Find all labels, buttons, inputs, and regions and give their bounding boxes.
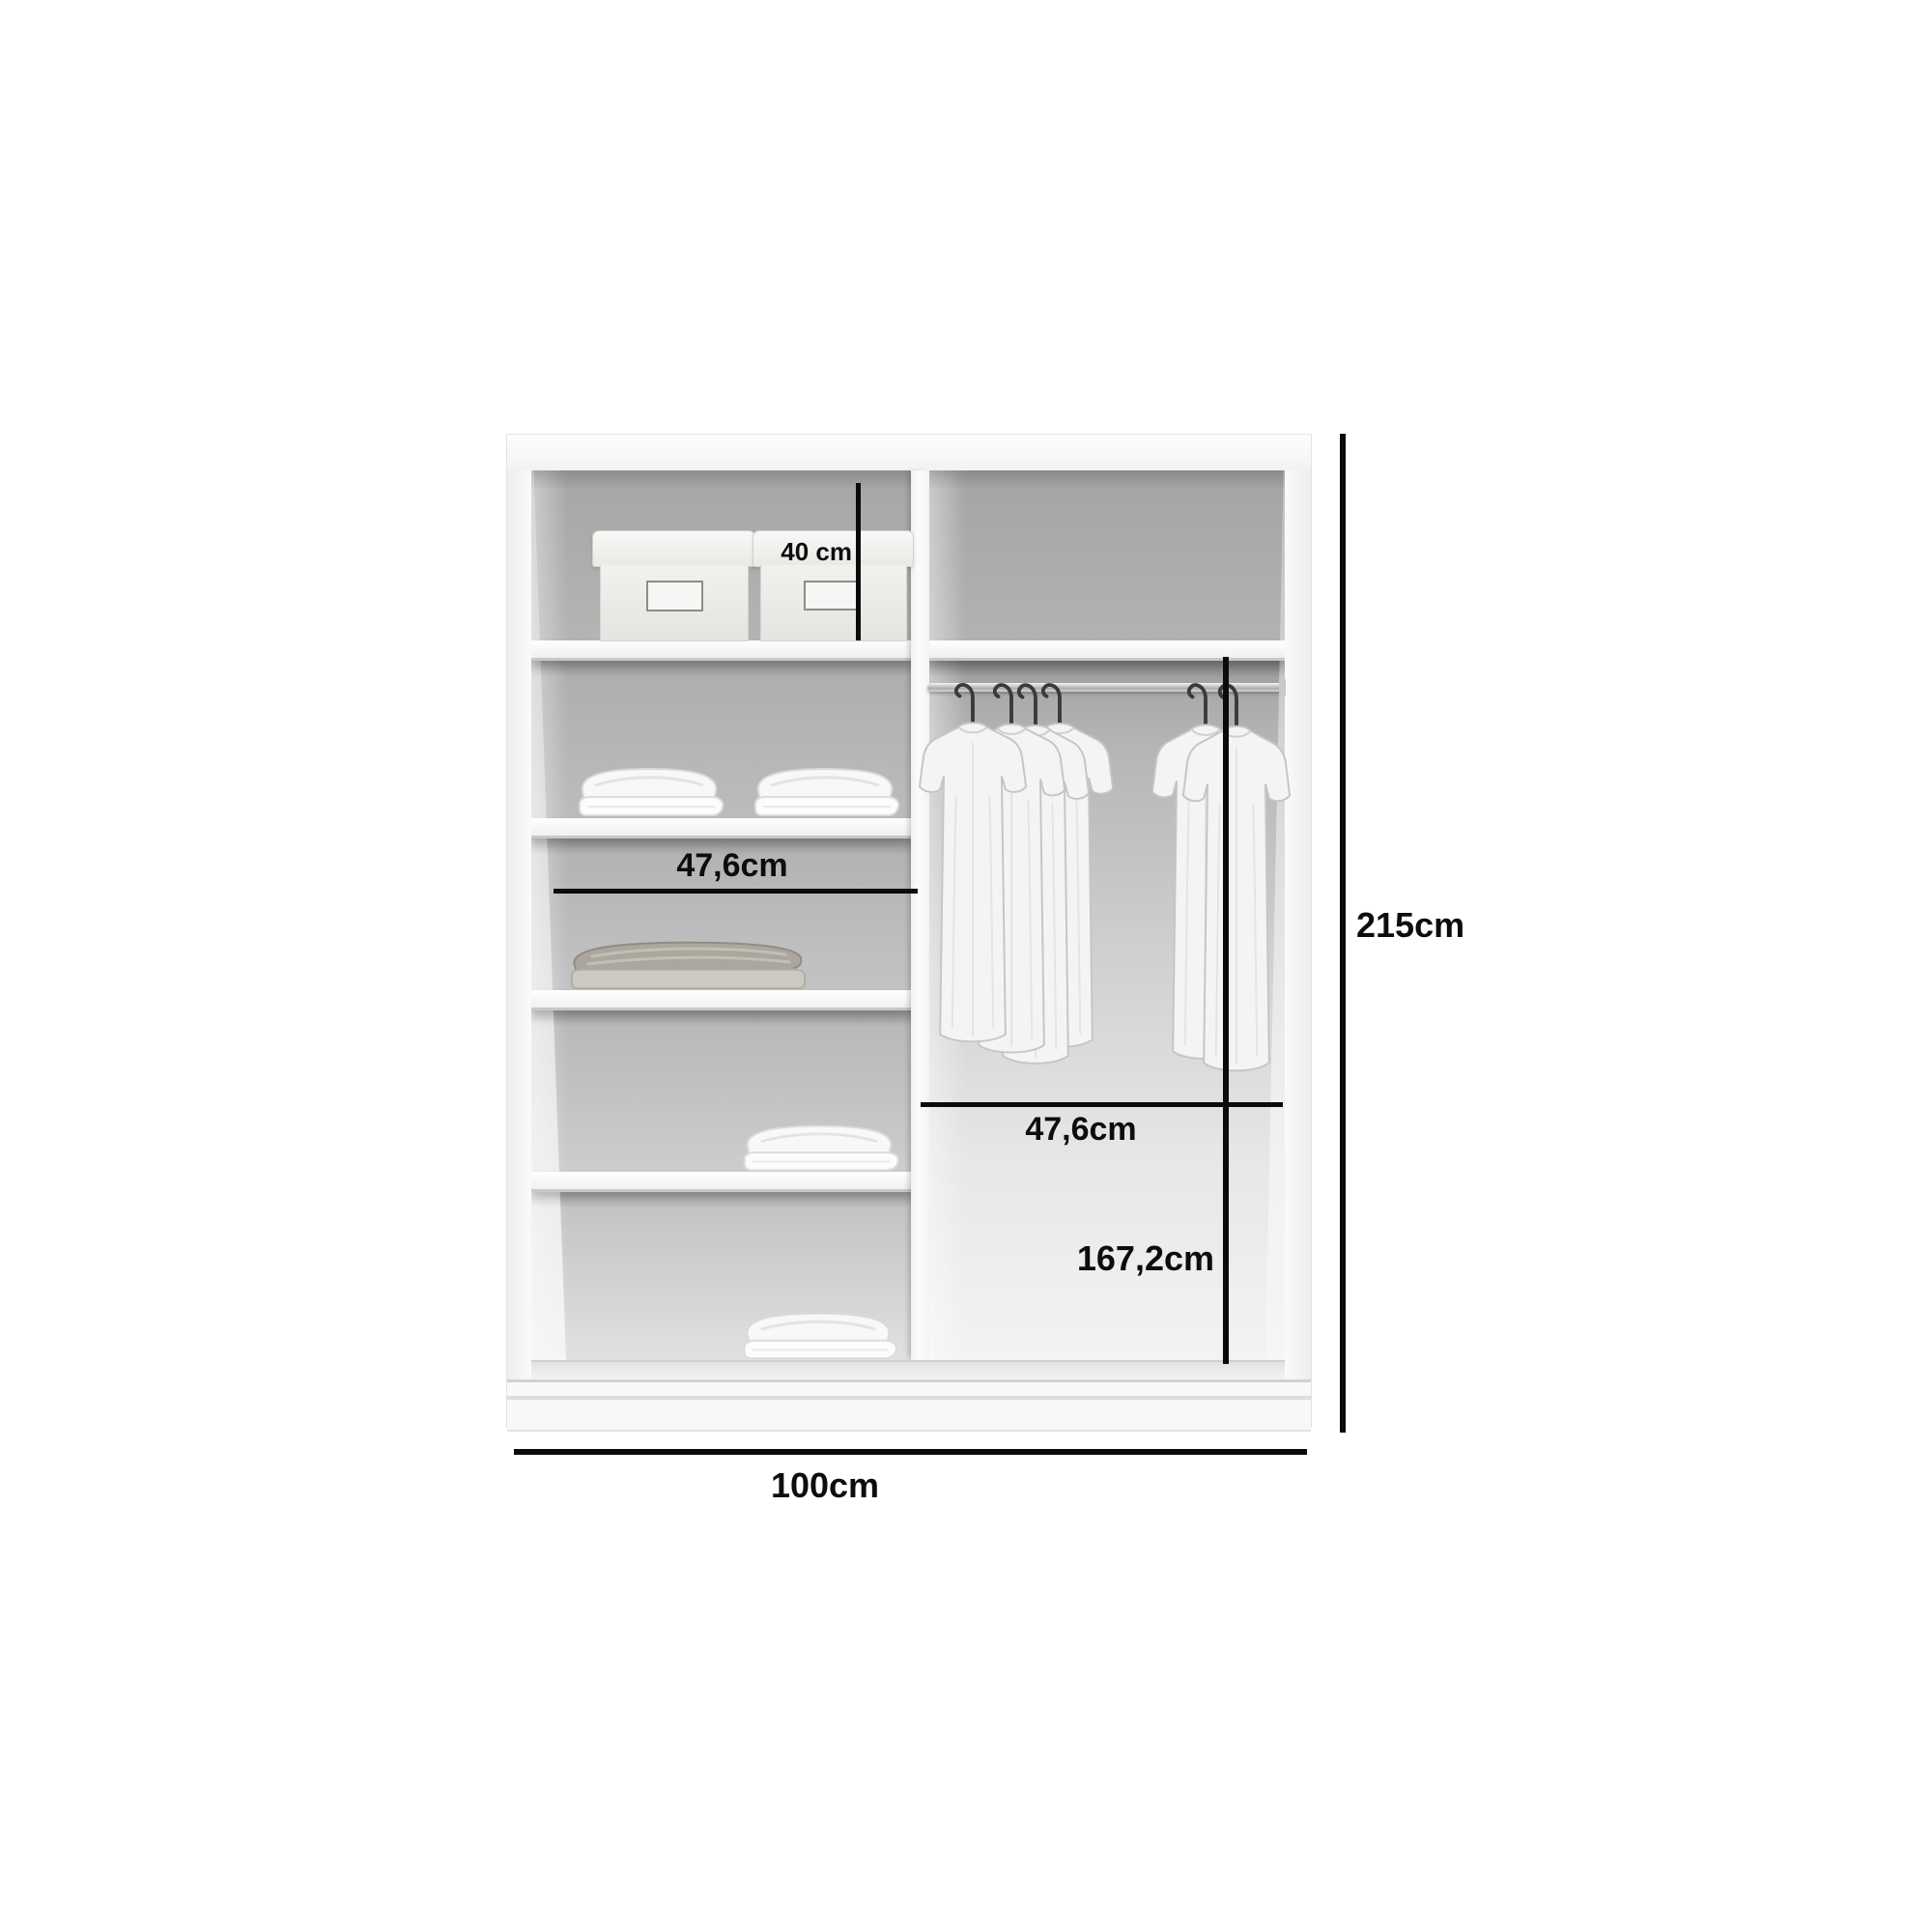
shelf-left-4 <box>531 1172 911 1192</box>
folded-towel <box>736 1118 902 1173</box>
folded-towel-stack <box>572 760 726 818</box>
label-left-column-width: 47,6cm <box>587 848 877 883</box>
label-right-column-width: 47,6cm <box>936 1112 1226 1147</box>
shelf-right-top <box>929 640 1285 661</box>
shelf-left-2 <box>531 818 911 838</box>
box-label-slot <box>646 581 703 611</box>
wardrobe-top-panel <box>507 435 1311 472</box>
folded-towel <box>736 1305 900 1361</box>
wardrobe-diagram: 40 cm 47,6cm 47,6cm 167,2cm 215cm 100cm <box>0 0 1932 1932</box>
wardrobe-base-plinth <box>507 1379 1311 1432</box>
label-top-shelf-height: 40 cm <box>719 538 852 565</box>
label-hanging-section-height: 167,2cm <box>1011 1240 1214 1277</box>
dimension-line-total-height <box>1340 434 1346 1433</box>
label-total-width: 100cm <box>678 1467 972 1504</box>
dimension-line-hanging-height <box>1223 657 1229 1364</box>
dimension-line-40cm <box>856 483 861 640</box>
shelf-left-3 <box>531 990 911 1010</box>
folded-gray-blanket <box>562 936 810 992</box>
box-label-slot <box>804 581 860 611</box>
wardrobe-floor <box>531 1360 1285 1381</box>
compartment-back-top-right <box>929 470 1285 640</box>
dimension-line-total-width <box>514 1449 1307 1455</box>
hanging-shirt <box>1180 680 1293 1094</box>
folded-towel-stack <box>748 760 902 818</box>
wardrobe-left-wall <box>507 470 531 1379</box>
plinth-groove <box>507 1396 1311 1400</box>
label-total-height: 215cm <box>1356 907 1549 944</box>
hanging-shirt <box>917 680 1029 1063</box>
dimension-line-left-width <box>554 889 918 894</box>
shelf-left-1 <box>531 640 911 661</box>
